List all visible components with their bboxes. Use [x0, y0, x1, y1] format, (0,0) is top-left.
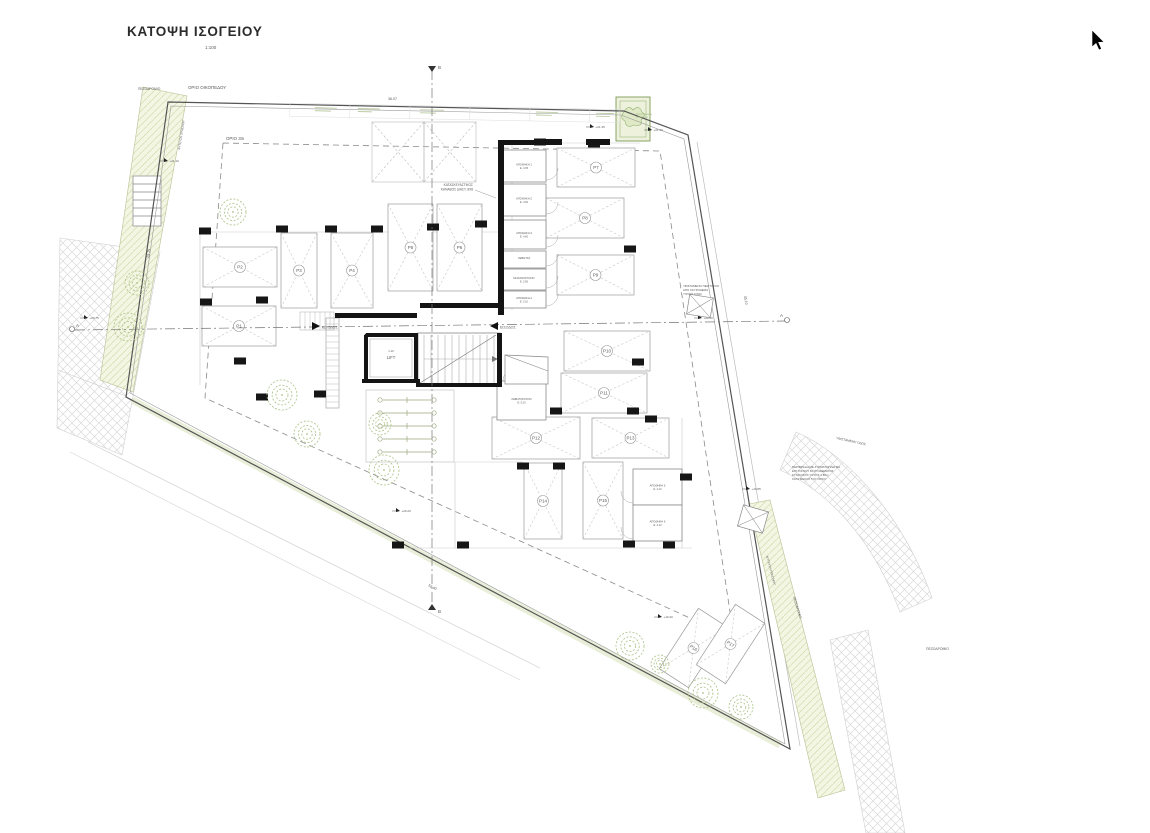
section-marker-b-bottom — [428, 604, 436, 610]
parking-space-label: P5 — [408, 245, 414, 250]
fence-note-line4: ΚΑΤΑ ΜΗΚΟΣ ΤΟΥ ΟΡΙΟΥ — [792, 477, 827, 481]
entrance-ramp — [326, 318, 339, 408]
room-label: ΑΠΟΘΗΚΗ 6 — [650, 520, 666, 524]
bike-parking — [366, 390, 454, 462]
room-label: ΑΠΟΘΗΚΗ 3 — [516, 231, 532, 235]
floor-plan-drawing: P1P2P3P4P5P6P7P8P9P10P11P12P13P14P15P16P… — [0, 0, 1150, 833]
door-arc — [546, 168, 558, 180]
setback-label: ΟΡΙΟ 3m — [226, 136, 245, 141]
room: ΑΠΟΘΗΚΗ 6Ε: 4.10 — [621, 505, 682, 541]
room-label: ΜΗΧΑΝΟΣΤΑΣΙΟ — [513, 276, 534, 280]
tree-icon — [267, 380, 297, 410]
column — [663, 542, 675, 549]
column — [200, 299, 212, 306]
column — [680, 474, 692, 481]
section-label-a-right: Α — [780, 313, 783, 318]
door-arc — [546, 254, 558, 266]
entrances: ΕΙΣΟΔΟΣ ΕΙΣΟΔΟΣ — [312, 322, 516, 330]
parking-space-label: P9 — [593, 273, 599, 278]
parking-space: P3 — [281, 233, 317, 308]
wall-segment — [497, 333, 502, 385]
dim-bottom: 52.40 — [428, 583, 438, 591]
scale-label: 1:100 — [205, 45, 217, 50]
parking-space: P13 — [592, 418, 669, 458]
room: ΛΕΒΗΤΑΣ — [502, 251, 558, 268]
section-label-a-left: Α — [76, 323, 79, 328]
parking-space: P4 — [331, 233, 373, 308]
column — [553, 463, 565, 470]
elevation-marker: +19.85 — [742, 486, 761, 491]
room-label: ΑΠΟΘΗΚΗ 1 — [516, 163, 532, 167]
column — [314, 391, 326, 398]
room: ΜΗΧΑΝΟΣΤΑΣΙΟΕ: 2.90 — [502, 269, 558, 290]
room-area-label: Ε: 5.20 — [518, 402, 527, 405]
elevation-value: +19.40 — [664, 615, 674, 619]
parking-space-label: P4 — [349, 268, 355, 273]
wall-segment — [335, 313, 417, 318]
lift-dim-label: 1.10 — [388, 349, 394, 353]
entrance-label-left: ΕΙΣΟΔΟΣ — [322, 326, 338, 330]
top-dimension-band — [290, 103, 652, 123]
parking-space: P5 — [388, 204, 433, 291]
parking-space-label: P7 — [593, 165, 599, 170]
column — [627, 408, 639, 415]
dim-top: 36.07 — [388, 97, 397, 101]
mouse-cursor-icon — [1092, 30, 1104, 50]
page-title: ΚΑΤΟΨΗ ΙΣΟΓΕΙΟΥ — [127, 24, 263, 39]
section-marker-a-right — [785, 318, 790, 323]
under-stair-store — [505, 355, 548, 384]
door-arc — [546, 294, 558, 306]
section-line-a — [75, 321, 785, 330]
room: ΑΠΟΘΗΚΗ 4Ε: 2.10 — [502, 291, 558, 308]
wall-segment — [414, 335, 418, 382]
wall-segment — [364, 335, 368, 382]
road-crosshatch-curve — [780, 432, 932, 612]
column — [623, 541, 635, 548]
elevation-value: +19.85 — [752, 487, 762, 491]
parking-space-label: P15 — [599, 498, 608, 503]
planting-strip-right — [749, 500, 845, 798]
wall-segment — [538, 139, 562, 145]
room-label: ΑΠΟΘΗΚΗ 2 — [516, 197, 532, 201]
grid-note-line2: ΚΑΝΑΒΟΣ ΔΙΑΣΤ. 8Χ8 — [441, 188, 473, 192]
grid-note-leader — [475, 190, 496, 198]
elevation-value: +21.30 — [654, 128, 664, 132]
open-parking-stalls — [372, 122, 476, 182]
parking-space: P6 — [437, 204, 482, 291]
elevation-value: +20.20 — [402, 509, 412, 513]
parking-space: P12 — [492, 417, 580, 459]
room-label: ΛΕΒΗΤΟΣΤΑΣΙΟ — [511, 397, 531, 401]
room-label: ΛΕΒΗΤΑΣ — [518, 256, 531, 260]
dim-right: 45.10 — [743, 296, 748, 306]
wall-segment — [498, 144, 504, 315]
room-area-label: Ε: 4.10 — [654, 524, 663, 527]
parking-space-label: P11 — [600, 391, 608, 396]
column — [475, 221, 487, 228]
grid-note-line1: ΚΑΤΑΣΚΕΥΑΣΤΙΚΟΣ — [444, 183, 473, 187]
room-area-label: Ε: 4.35 — [520, 167, 529, 170]
tree-icon — [369, 455, 399, 485]
parking-space: P7 — [557, 148, 635, 187]
elevation-value: +21.10 — [170, 159, 180, 163]
parking-space-label: P13 — [626, 436, 635, 441]
parking-space-label: P14 — [539, 499, 548, 504]
column — [427, 224, 439, 231]
elevation-marker: +20.20 — [392, 508, 411, 513]
parking-space: P11 — [561, 373, 647, 413]
column — [199, 228, 211, 235]
lift-label: LIFT — [387, 355, 396, 360]
existing-road-label: ΥΦΙΣΤΑΜΕΝΗ ΟΔΟΣ — [836, 436, 867, 446]
tree-icon — [369, 413, 391, 435]
column — [256, 297, 268, 304]
column — [234, 358, 246, 365]
room: ΑΠΟΘΗΚΗ 5Ε: 4.10 — [621, 469, 682, 505]
column — [624, 246, 636, 253]
section-label-b-bottom: Β — [438, 609, 441, 614]
plot-boundary-label: ΟΡΙΟ ΟΙΚΟΠΕΔΟΥ — [188, 85, 226, 90]
bicycle-icon — [378, 423, 436, 429]
wall-segment — [362, 379, 420, 383]
tree-icon — [729, 695, 753, 719]
roads-layer — [57, 142, 932, 833]
bicycle-icon — [378, 397, 436, 403]
wall-segment — [366, 333, 418, 337]
room-area-label: Ε: 2.10 — [520, 301, 529, 304]
bicycle-icon — [378, 436, 436, 442]
floor-plan-canvas: P1P2P3P4P5P6P7P8P9P10P11P12P13P14P15P16P… — [0, 0, 1150, 833]
parking-space-label: P3 — [296, 268, 302, 273]
column — [325, 226, 337, 233]
wall-segment — [586, 139, 610, 145]
parking-space: P15 — [583, 462, 623, 539]
bike-icons — [378, 397, 436, 455]
door-arc — [546, 276, 558, 288]
parking-space-label: P10 — [603, 349, 612, 354]
column — [392, 542, 404, 549]
room-label: ΑΠΟΘΗΚΗ 4 — [516, 296, 532, 300]
parking-space: P14 — [524, 463, 562, 539]
elevation-value: +21.35 — [596, 125, 606, 129]
parking-space-label: P12 — [532, 436, 541, 441]
column — [276, 226, 288, 233]
utility-boxes — [687, 294, 769, 533]
elevation-value: +20.75 — [90, 316, 100, 320]
room-area-label: Ε: 2.90 — [520, 281, 529, 284]
parking-space: P1 — [202, 306, 276, 346]
column — [517, 463, 529, 470]
room-area-label: Ε: 4.60 — [520, 201, 529, 204]
entrance-arrow-left-icon — [312, 322, 320, 330]
parking-space-label: P6 — [457, 245, 463, 250]
room: ΑΠΟΘΗΚΗ 1Ε: 4.35 — [502, 150, 558, 182]
column — [457, 542, 469, 549]
road-crosshatch-bottom-right — [830, 630, 905, 833]
room-label: ΑΠΟΘΗΚΗ 5 — [650, 484, 666, 488]
column — [632, 359, 644, 366]
room-area-label: Ε: 4.10 — [654, 488, 663, 491]
section-label-b-top: Β — [438, 65, 441, 70]
road-edge-line — [88, 442, 540, 668]
tree-icon — [220, 199, 246, 225]
column — [550, 408, 562, 415]
parking-space-label: P8 — [582, 216, 588, 221]
column — [371, 226, 383, 233]
elevation-marker: +21.35 — [586, 124, 605, 129]
sidewalk-label-top: ΠΕΖΟΔΡΟΜΙΟ — [138, 87, 161, 91]
wall-segment — [420, 303, 503, 308]
parking-space: P9 — [557, 255, 634, 295]
parking-space-label: P2 — [237, 265, 243, 270]
column — [645, 416, 657, 423]
section-marker-b-top — [428, 66, 436, 72]
column — [256, 394, 268, 401]
room-area-label: Ε: 4.60 — [520, 236, 529, 239]
tree-icon — [294, 421, 320, 447]
planting-strip-left — [100, 87, 187, 392]
wall-segment — [416, 383, 502, 387]
elevation-marker: +19.40 — [654, 614, 673, 619]
wall-note-line3: ΥΨΟΥΣ 0.50m — [683, 292, 703, 296]
bicycle-icon — [378, 449, 436, 455]
sidewalk-label-right2: ΠΕΖΟΔΡΟΜΙΟ — [926, 647, 949, 651]
parking-space: P2 — [203, 247, 277, 287]
entrance-label-right: ΕΙΣΟΔΟΣ — [500, 326, 516, 330]
tree-icon — [616, 632, 644, 660]
entrance-arrow-right-icon — [490, 322, 498, 330]
